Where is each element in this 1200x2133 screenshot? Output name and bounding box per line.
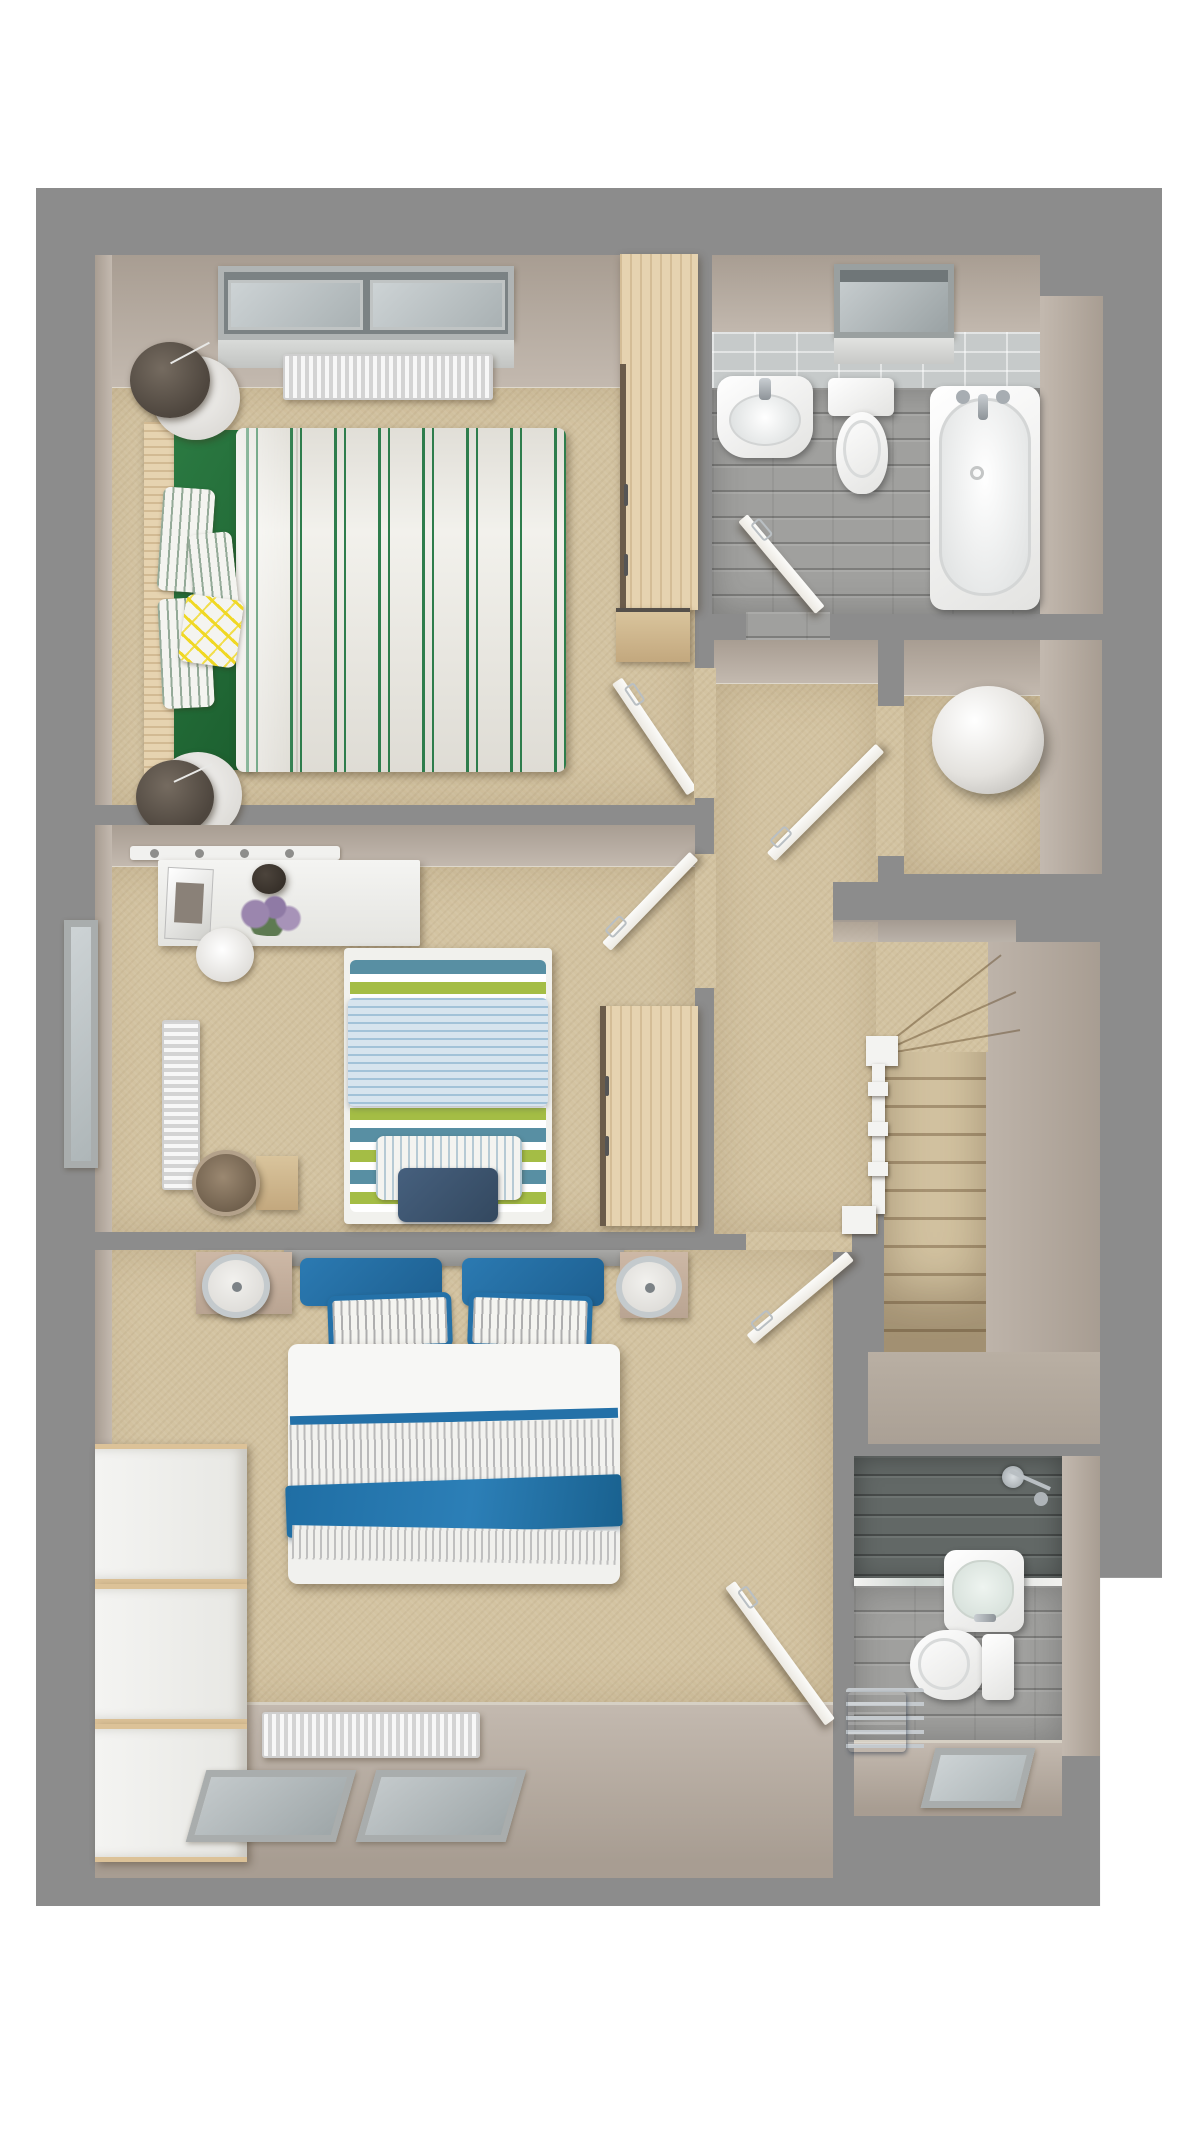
left-window-icon	[64, 920, 98, 1168]
spindle	[868, 1082, 888, 1096]
bathroom-right-wall-face	[1040, 296, 1103, 614]
basin-bowl	[952, 1560, 1014, 1620]
toilet-seat	[843, 420, 881, 478]
bedside-lamp-icon	[130, 342, 210, 418]
yellow-doodle-cushion	[178, 593, 245, 668]
master-window-icon	[356, 1770, 527, 1842]
magazine	[164, 867, 214, 941]
ensuite-window-icon	[921, 1748, 1036, 1808]
wardrobe-handle	[624, 484, 628, 506]
wardrobe	[620, 254, 698, 610]
rail-knob	[285, 849, 294, 858]
bath-drain	[970, 466, 984, 480]
ensuite-right-wall-face	[1062, 1456, 1100, 1756]
stair-flight	[884, 1052, 986, 1352]
duvet-fold	[236, 428, 298, 772]
skylight-sill	[834, 338, 954, 364]
lamp-center	[232, 1282, 242, 1292]
basin-bowl	[729, 394, 801, 446]
blue-towel	[848, 1692, 906, 1752]
chest-of-drawers	[95, 1444, 247, 1584]
pinstripe-band-lower	[292, 1525, 617, 1565]
chest-of-drawers	[95, 1584, 247, 1724]
lamp-center	[645, 1283, 655, 1293]
doorway-gap	[694, 668, 716, 798]
desk-plant-pot	[252, 864, 286, 894]
knob-rail	[130, 846, 340, 860]
bath-spout-icon	[978, 394, 988, 420]
bathtub-inner	[939, 398, 1031, 596]
wardrobe	[600, 1006, 698, 1226]
stair-wall-stub	[833, 882, 1016, 922]
floor-plan-scene	[0, 0, 1200, 2133]
bathroom-doorway	[746, 612, 830, 640]
wardrobe-handle	[605, 1076, 609, 1096]
toilet-icon	[836, 412, 888, 494]
bedroom-green-left-wall-face	[95, 255, 112, 805]
spindle	[868, 1162, 888, 1176]
rail-knob	[195, 849, 204, 858]
bath-taps-icon	[956, 390, 970, 404]
master-window-icon	[186, 1770, 357, 1842]
wardrobe-handle	[605, 1136, 609, 1156]
ensuite-basin-icon	[944, 1550, 1024, 1632]
ring-lamp-icon	[202, 1254, 270, 1318]
landing-top-wall-face	[714, 640, 878, 686]
radiator-icon	[262, 1712, 480, 1758]
cupboard-right-wall-face	[1040, 640, 1102, 874]
shower-valve-icon	[1034, 1492, 1048, 1506]
basin-icon	[717, 376, 813, 458]
magazine-cover	[174, 882, 204, 923]
navy-cushion	[398, 1168, 498, 1222]
toilet-seat	[918, 1638, 970, 1690]
dormer-pane-left	[228, 280, 363, 330]
bath-taps-icon	[996, 390, 1010, 404]
wardrobe-door-gap	[600, 1006, 606, 1226]
vertical-radiator-icon	[162, 1020, 200, 1190]
ring-lamp-icon	[616, 1256, 682, 1318]
doorway-gap	[694, 854, 716, 988]
dormer-window-icon	[218, 266, 514, 340]
wardrobe-base-unit	[616, 608, 690, 662]
ensuite-cistern	[982, 1634, 1014, 1700]
hot-water-cylinder-icon	[932, 686, 1044, 794]
bathtub-icon	[930, 386, 1040, 610]
doorway-gap	[746, 1232, 852, 1252]
flower-bunch	[232, 892, 310, 936]
doorway-gap	[876, 706, 906, 856]
newel-post	[866, 1036, 898, 1066]
round-stool	[196, 928, 254, 982]
dormer-pane-right	[370, 280, 505, 330]
radiator-icon	[283, 354, 493, 400]
light-blue-quilt	[348, 998, 548, 1106]
woven-basket	[192, 1150, 260, 1216]
basin-tap-icon	[759, 378, 771, 400]
wardrobe-handle	[624, 554, 628, 576]
skylight-window-icon	[834, 264, 954, 338]
basin-tap-icon	[974, 1614, 996, 1622]
stairwell-right-wall-face	[986, 942, 1100, 1352]
newel-post	[842, 1206, 876, 1234]
side-table	[256, 1156, 298, 1210]
rail-knob	[240, 849, 249, 858]
spindle	[868, 1122, 888, 1136]
bedside-lamp-icon	[136, 760, 214, 834]
stair-half-landing	[868, 1352, 1100, 1444]
rail-knob	[150, 849, 159, 858]
skylight-bar	[840, 270, 948, 282]
stair-wall-stub-face	[833, 920, 1016, 942]
toilet-cistern	[828, 378, 894, 416]
